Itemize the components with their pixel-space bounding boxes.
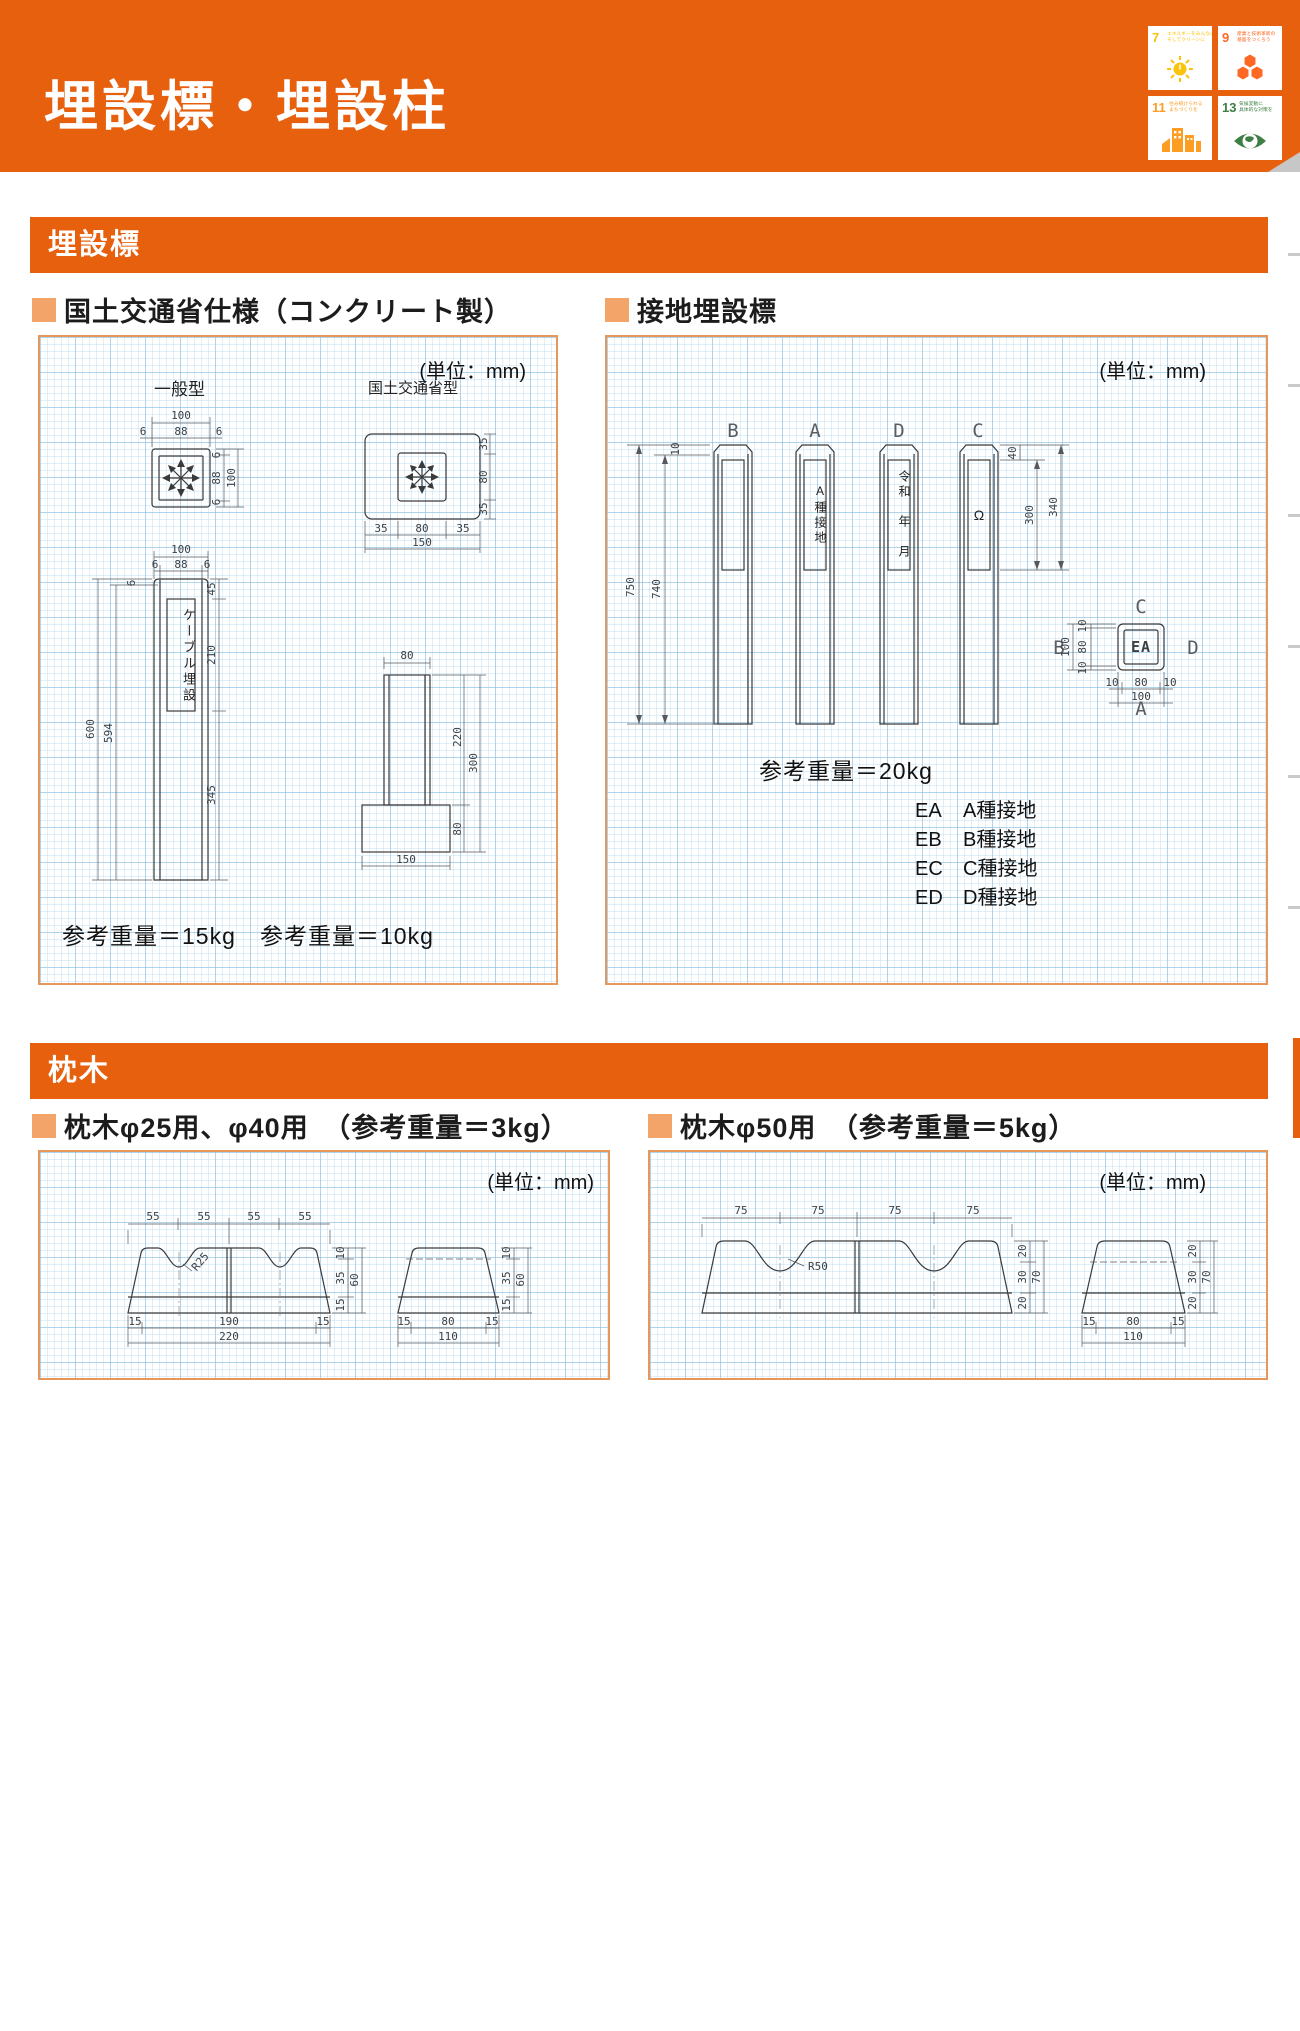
svg-text:88: 88	[210, 471, 223, 484]
edge-tick	[1288, 384, 1300, 387]
svg-text:55: 55	[146, 1210, 159, 1223]
svg-text:まちづくりを: まちづくりを	[1169, 106, 1198, 113]
sleeper-side-view: 10 35 15 60 15 80 15 110	[397, 1246, 532, 1347]
svg-text:そしてクリーンに: そしてクリーンに	[1167, 36, 1205, 43]
post-a-plate-text: A種接地	[804, 465, 826, 565]
svg-text:80: 80	[415, 522, 428, 535]
svg-text:20: 20	[1016, 1296, 1029, 1309]
svg-text:80: 80	[441, 1315, 454, 1328]
panel-mlit-concrete: (単位：mm) 一般型 国土交通省型 100 6	[38, 335, 558, 985]
svg-text:20: 20	[1186, 1296, 1199, 1309]
subheading-makuragi-50: 枕木φ50用 （参考重量＝5kg）	[648, 1106, 1076, 1145]
plate-dimensions: 40 300 340	[1000, 445, 1069, 570]
sdg-13-eye-globe-icon: 13 気候変動に 具体的な対策を	[1218, 96, 1282, 160]
svg-text:150: 150	[412, 536, 432, 549]
edge-tick	[1288, 775, 1300, 778]
section-bar-makuragi: 枕木	[30, 1043, 1268, 1099]
subheading-ground-marker-label: 接地埋設標	[637, 290, 777, 329]
svg-text:35: 35	[477, 502, 490, 515]
subheading-mlit-spec-label: 国土交通省仕様（コンクリート製）	[64, 290, 512, 329]
svg-text:75: 75	[734, 1204, 747, 1217]
panel-makuragi-50: (単位：mm) R50 75 75 75 75 20	[648, 1150, 1268, 1380]
svg-text:15: 15	[1082, 1315, 1095, 1328]
svg-text:80: 80	[451, 822, 464, 835]
svg-text:750: 750	[624, 577, 637, 597]
catalog-page: 埋設標・埋設柱 7 エネルギーをみんなに そしてクリーンに	[0, 0, 1300, 2031]
svg-text:20: 20	[1186, 1244, 1199, 1257]
svg-text:220: 220	[451, 727, 464, 747]
svg-text:80: 80	[400, 649, 413, 662]
svg-text:11: 11	[1152, 100, 1166, 115]
edge-index-highlight	[1293, 1038, 1300, 1138]
post-letter-d: D	[893, 420, 904, 442]
svg-text:60: 60	[348, 1273, 361, 1286]
svg-text:340: 340	[1047, 497, 1060, 517]
svg-text:D: D	[1187, 637, 1198, 659]
svg-text:15: 15	[128, 1315, 141, 1328]
svg-text:10: 10	[1076, 619, 1089, 632]
svg-text:600: 600	[84, 719, 97, 739]
weight-ground: 参考重量＝20kg	[759, 752, 933, 786]
sdg-9-tile: 9 産業と技術革新の 基盤をつくろう	[1218, 26, 1282, 90]
svg-text:R50: R50	[808, 1260, 828, 1273]
svg-text:6: 6	[140, 425, 147, 438]
orange-bullet-icon	[32, 1114, 56, 1138]
svg-text:C: C	[1135, 596, 1146, 618]
svg-text:80: 80	[1134, 676, 1147, 689]
svg-text:55: 55	[247, 1210, 260, 1223]
orange-bullet-icon	[648, 1114, 672, 1138]
post-letter-b: B	[727, 420, 738, 442]
svg-text:35: 35	[500, 1271, 513, 1284]
svg-text:9: 9	[1222, 30, 1229, 45]
svg-text:740: 740	[650, 579, 663, 599]
svg-text:10: 10	[334, 1246, 347, 1259]
svg-text:80: 80	[1076, 640, 1089, 653]
post-c-plate-text: Ω	[968, 507, 990, 523]
post-c	[960, 445, 998, 724]
svg-text:80: 80	[477, 470, 490, 483]
svg-text:6: 6	[204, 558, 211, 571]
sdg-7-tile: 7 エネルギーをみんなに そしてクリーンに	[1148, 26, 1212, 90]
sleeper-front-view: R25 55 55 55 55 10 35 15 60 1	[128, 1210, 366, 1347]
svg-text:15: 15	[500, 1298, 513, 1311]
edge-tick	[1288, 253, 1300, 256]
svg-text:6: 6	[152, 558, 159, 571]
subheading-makuragi-25-40-label: 枕木φ25用、φ40用 （参考重量＝3kg）	[64, 1106, 569, 1145]
svg-text:30: 30	[1186, 1270, 1199, 1283]
svg-text:75: 75	[966, 1204, 979, 1217]
svg-text:60: 60	[514, 1273, 527, 1286]
svg-text:具体的な対策を: 具体的な対策を	[1239, 106, 1273, 113]
svg-text:10: 10	[500, 1246, 513, 1259]
sdg-icon-grid: 7 エネルギーをみんなに そしてクリーンに 9 産	[1148, 26, 1282, 160]
svg-text:10: 10	[1163, 676, 1176, 689]
svg-text:6: 6	[216, 425, 223, 438]
svg-text:6: 6	[210, 499, 223, 506]
svg-text:55: 55	[197, 1210, 210, 1223]
svg-text:15: 15	[334, 1298, 347, 1311]
svg-text:150: 150	[396, 853, 416, 866]
sdg-11-buildings-icon: 11 住み続けられる まちづくりを	[1148, 96, 1212, 160]
post-letter-c: C	[972, 420, 983, 442]
grounding-legend: EAA種接地 EBB種接地 ECC種接地 EDD種接地	[915, 797, 1037, 913]
svg-text:35: 35	[374, 522, 387, 535]
svg-text:190: 190	[219, 1315, 239, 1328]
legend-row: EAA種接地	[915, 797, 1037, 826]
svg-text:10: 10	[669, 442, 682, 455]
svg-text:70: 70	[1030, 1270, 1043, 1283]
svg-text:10: 10	[1076, 661, 1089, 674]
svg-text:45: 45	[205, 582, 218, 595]
svg-text:300: 300	[467, 753, 480, 773]
svg-text:100: 100	[1131, 690, 1151, 703]
plan-view: EA C B D A 100 10 80 10 10 80 10 100	[1053, 596, 1198, 720]
svg-text:産業と技術革新の: 産業と技術革新の	[1237, 30, 1276, 37]
svg-text:345: 345	[205, 785, 218, 805]
svg-text:220: 220	[219, 1330, 239, 1343]
sdg-11-tile: 11 住み続けられる まちづくりを	[1148, 96, 1212, 160]
subheading-makuragi-25-40: 枕木φ25用、φ40用 （参考重量＝3kg）	[32, 1106, 569, 1145]
svg-text:35: 35	[456, 522, 469, 535]
svg-text:110: 110	[1123, 1330, 1143, 1343]
edge-tick	[1288, 645, 1300, 648]
svg-text:88: 88	[174, 425, 187, 438]
section-bar-maisetsuhyo: 埋設標	[30, 217, 1268, 273]
svg-text:80: 80	[1126, 1315, 1139, 1328]
svg-text:40: 40	[1006, 446, 1019, 459]
svg-text:100: 100	[171, 409, 191, 422]
svg-text:エネルギーをみんなに: エネルギーをみんなに	[1167, 30, 1212, 37]
general-top-view: 100 6 88 6 6 88 6 100	[140, 409, 244, 507]
orange-bullet-icon	[32, 298, 56, 322]
svg-text:住み続けられる: 住み続けられる	[1169, 100, 1203, 107]
svg-text:EA: EA	[1131, 638, 1151, 656]
makuragi-25-40-drawing: R25 55 55 55 55 10 35 15 60 1	[40, 1152, 608, 1378]
mlit-side-view: 80 150 220 80 300	[362, 649, 486, 870]
svg-text:110: 110	[438, 1330, 458, 1343]
svg-text:100: 100	[1059, 637, 1072, 657]
edge-tick	[1288, 906, 1300, 909]
svg-text:15: 15	[1171, 1315, 1184, 1328]
svg-text:15: 15	[316, 1315, 329, 1328]
svg-text:55: 55	[298, 1210, 311, 1223]
panel-makuragi-25-40: (単位：mm) R25 55 55 55 55 10	[38, 1150, 610, 1380]
edge-tick	[1288, 514, 1300, 517]
svg-text:30: 30	[1016, 1270, 1029, 1283]
svg-text:基盤をつくろう: 基盤をつくろう	[1237, 36, 1271, 43]
subheading-ground-marker: 接地埋設標	[605, 290, 777, 329]
mlit-marker-drawing: 100 6 88 6 6 88 6 100 100 6 88	[40, 337, 560, 987]
post-d-plate-text: 令和 年 月	[888, 465, 910, 565]
svg-text:300: 300	[1023, 505, 1036, 525]
svg-text:6: 6	[210, 452, 223, 459]
svg-text:75: 75	[811, 1204, 824, 1217]
subheading-makuragi-50-label: 枕木φ50用 （参考重量＝5kg）	[680, 1106, 1076, 1145]
page-header: 埋設標・埋設柱 7 エネルギーをみんなに そしてクリーンに	[0, 0, 1300, 172]
svg-text:75: 75	[888, 1204, 901, 1217]
svg-text:気候変動に: 気候変動に	[1239, 100, 1263, 107]
mlit-top-view: 35 80 35 35 80 35 150	[365, 434, 496, 553]
sdg-9-cubes-icon: 9 産業と技術革新の 基盤をつくろう	[1218, 26, 1282, 90]
svg-text:210: 210	[205, 645, 218, 665]
height-dimensions: 750 740 10	[624, 442, 717, 724]
svg-text:7: 7	[1152, 30, 1159, 45]
svg-text:35: 35	[334, 1271, 347, 1284]
post-b	[714, 445, 752, 724]
sdg-7-sun-icon: 7 エネルギーをみんなに そしてクリーンに	[1148, 26, 1212, 90]
svg-text:15: 15	[397, 1315, 410, 1328]
svg-text:15: 15	[485, 1315, 498, 1328]
sdg-13-tile: 13 気候変動に 具体的な対策を	[1218, 96, 1282, 160]
svg-text:594: 594	[102, 723, 115, 743]
svg-text:13: 13	[1222, 100, 1236, 115]
post-letter-a: A	[809, 420, 821, 442]
svg-text:100: 100	[225, 468, 238, 488]
svg-text:88: 88	[174, 558, 187, 571]
makuragi-50-drawing: R50 75 75 75 75 20 30 20 70	[650, 1152, 1266, 1378]
general-front-view: 100 6 88 6 600 594 6 45 210 345	[84, 543, 228, 880]
svg-text:100: 100	[171, 543, 191, 556]
svg-text:20: 20	[1016, 1244, 1029, 1257]
svg-text:6: 6	[125, 580, 138, 587]
legend-row: EDD種接地	[915, 884, 1037, 913]
svg-text:70: 70	[1200, 1270, 1213, 1283]
legend-row: ECC種接地	[915, 855, 1037, 884]
sleeper-front-view: R50 75 75 75 75 20 30 20 70	[702, 1204, 1048, 1318]
weight-general: 参考重量＝15kg	[62, 917, 236, 951]
orange-bullet-icon	[605, 298, 629, 322]
svg-text:10: 10	[1105, 676, 1118, 689]
legend-row: EBB種接地	[915, 826, 1037, 855]
plate-text-cable: ケーブル埋設	[167, 603, 195, 709]
subheading-mlit-spec: 国土交通省仕様（コンクリート製）	[32, 290, 512, 329]
panel-ground-marker: (単位：mm) B A D C	[605, 335, 1268, 985]
sleeper-side-view: 20 30 20 70 15 80 15 110	[1082, 1241, 1218, 1347]
svg-text:35: 35	[477, 437, 490, 450]
page-title: 埋設標・埋設柱	[44, 62, 450, 141]
weight-mlit: 参考重量＝10kg	[260, 917, 434, 951]
